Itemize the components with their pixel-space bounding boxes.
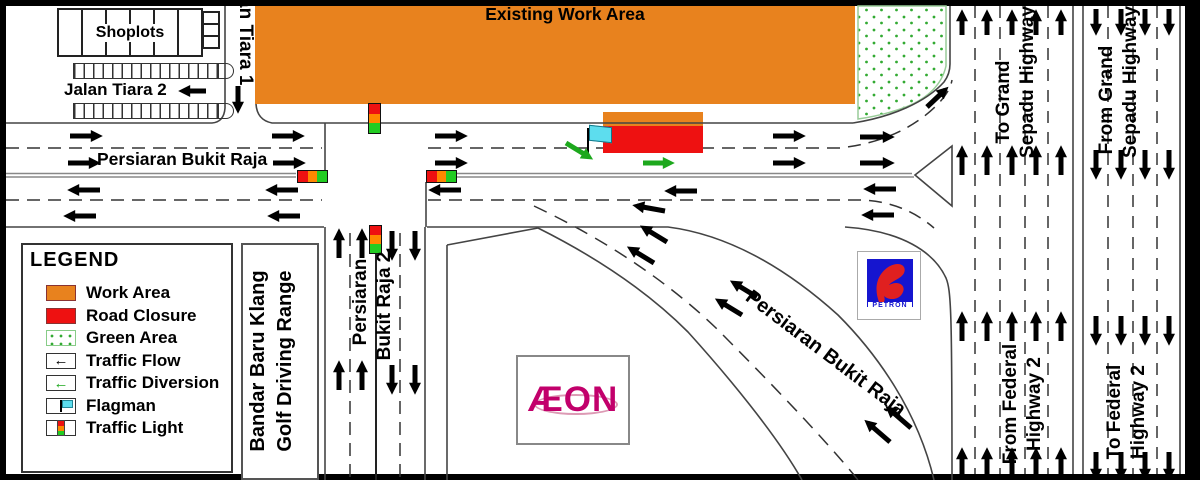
work-area-title: Existing Work Area <box>430 4 700 25</box>
traffic-diversion-arrow-icon: ← <box>46 375 76 391</box>
legend-item-green-area: Green Area <box>46 327 231 350</box>
road-closure-area <box>603 126 703 153</box>
petron-logo <box>867 259 913 307</box>
parking-row-north-cap <box>217 63 234 79</box>
aeon-logo: ÆON <box>528 380 619 420</box>
shoplots-label: Shoplots <box>91 24 169 42</box>
merge-gore-island <box>915 146 952 206</box>
petron-wordmark: PETRON <box>868 302 912 310</box>
work-area-swatch <box>46 285 76 301</box>
legend-title: LEGEND <box>30 249 231 272</box>
aeon-mall-box: ÆON <box>516 355 630 445</box>
traffic-light-north <box>368 103 381 134</box>
shoplots-building: Shoplots <box>57 8 203 57</box>
legend-item-traffic-light: Traffic Light <box>46 417 231 440</box>
legend-item-flagman: Flagman <box>46 395 231 418</box>
flagman-icon <box>589 125 612 143</box>
green-area-swatch <box>46 330 76 346</box>
traffic-light-west <box>297 170 328 183</box>
legend-item-traffic-diversion: ← Traffic Diversion <box>46 372 231 395</box>
traffic-flow-arrow-icon: ← <box>46 353 76 369</box>
jalan-tiara-2-label: Jalan Tiara 2 <box>64 80 167 100</box>
road-closure-swatch <box>46 308 76 324</box>
legend-item-road-closure: Road Closure <box>46 305 231 328</box>
legend-item-work-area: Work Area <box>46 282 231 305</box>
traffic-light-south <box>369 225 382 254</box>
green-area <box>858 6 946 119</box>
legend: LEGEND Work Area Road Closure Green Area… <box>21 243 233 473</box>
petron-station-box: PETRON <box>857 251 921 320</box>
work-area-strip <box>603 112 703 126</box>
parking-row-south <box>73 103 219 119</box>
flagman-swatch-icon <box>46 398 76 414</box>
traffic-light-swatch-icon <box>46 420 76 436</box>
parking-row-north <box>73 63 219 79</box>
traffic-management-plan: Shoplots ÆON PETRON LEGEND <box>0 0 1200 480</box>
persiaran-bukit-raja-label: Persiaran Bukit Raja <box>97 149 267 170</box>
parking-row-south-cap <box>217 103 234 119</box>
center-lines <box>6 174 914 178</box>
traffic-light-east <box>426 170 457 183</box>
shoplots-annex <box>202 11 220 49</box>
legend-item-traffic-flow: ← Traffic Flow <box>46 350 231 373</box>
golf-driving-range-area <box>241 243 319 480</box>
